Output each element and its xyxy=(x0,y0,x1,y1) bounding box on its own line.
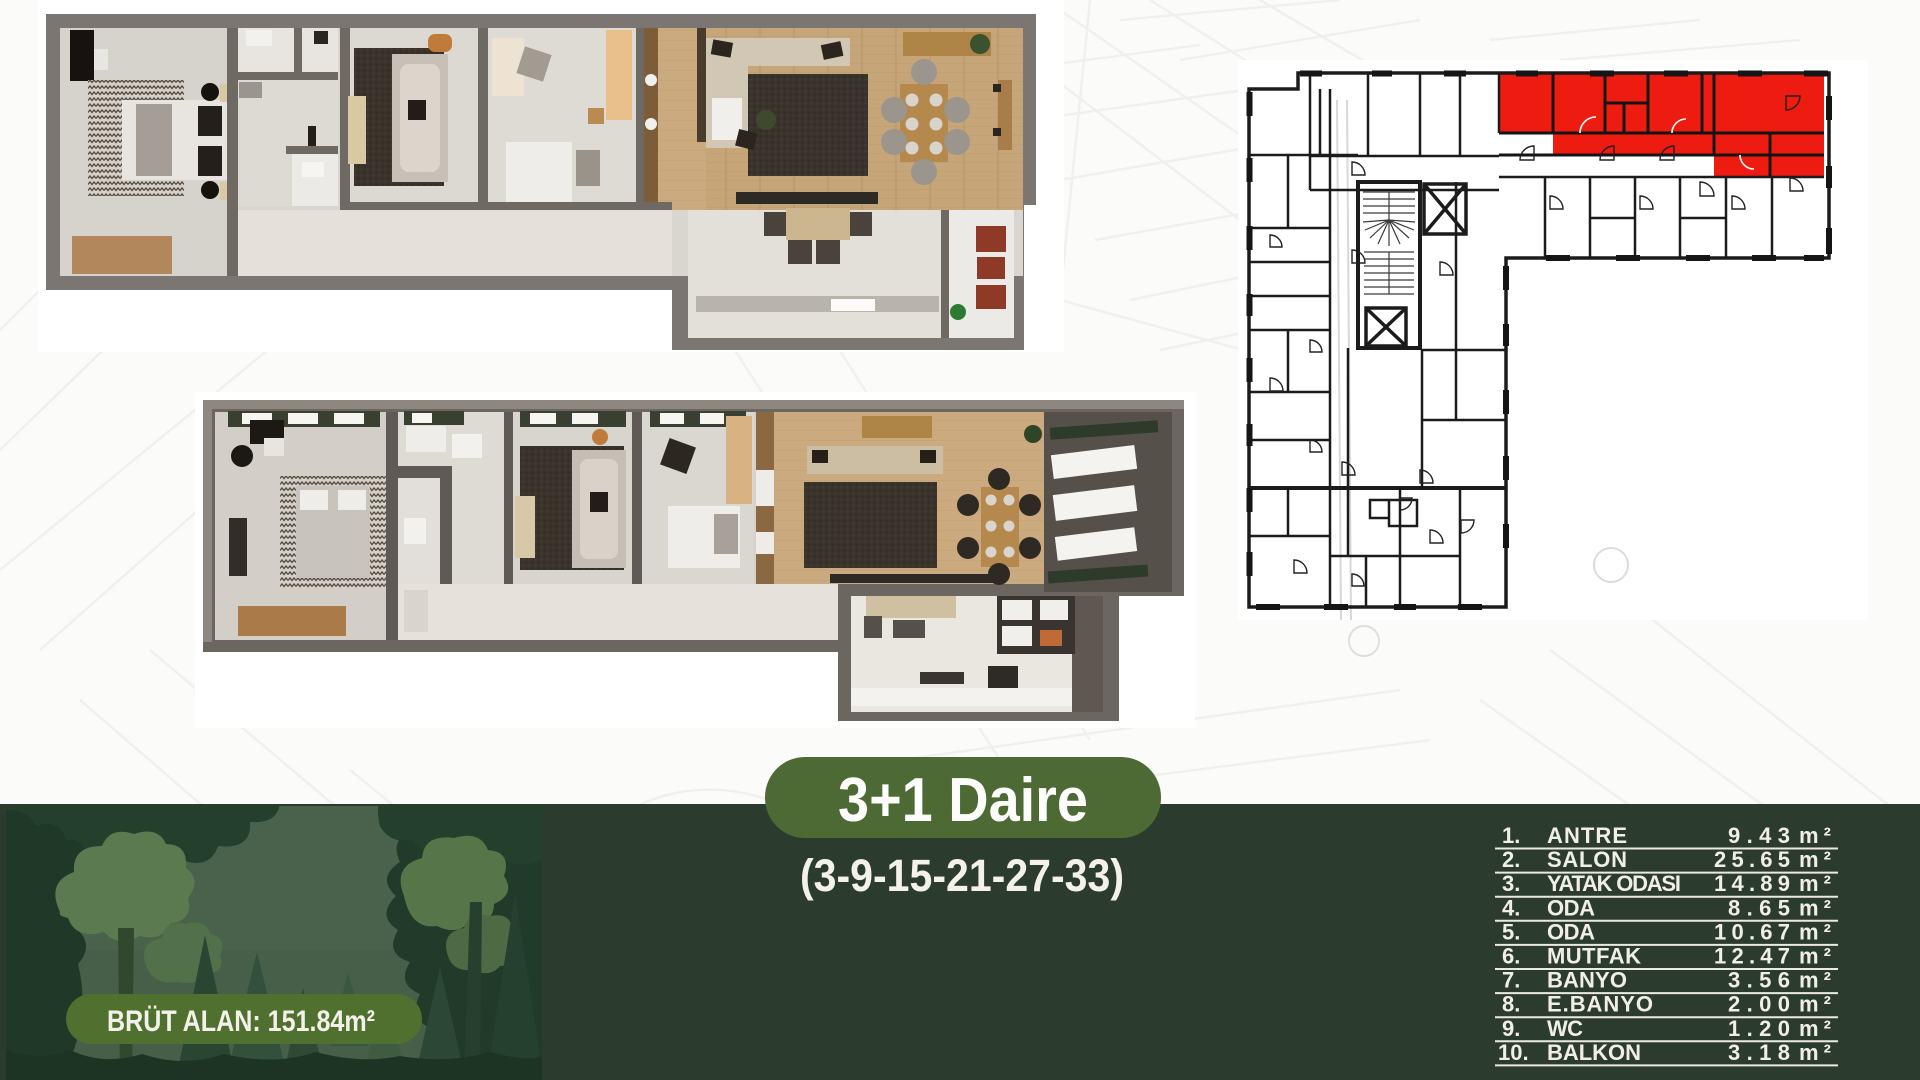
svg-text:12.47: 12.47 xyxy=(1714,944,1790,969)
svg-text:WC: WC xyxy=(1547,1016,1583,1041)
svg-text:BALKON: BALKON xyxy=(1547,1040,1641,1065)
svg-text:1.: 1. xyxy=(1502,823,1520,848)
svg-text:m²: m² xyxy=(1799,919,1831,944)
svg-text:m²: m² xyxy=(1799,1040,1831,1065)
svg-text:ODA: ODA xyxy=(1547,895,1595,920)
svg-text:MUTFAK: MUTFAK xyxy=(1547,944,1641,969)
svg-text:m²: m² xyxy=(1799,992,1831,1017)
svg-text:3.18: 3.18 xyxy=(1728,1040,1790,1065)
svg-text:m²: m² xyxy=(1799,823,1831,848)
svg-text:2.: 2. xyxy=(1502,847,1520,872)
svg-text:8.65: 8.65 xyxy=(1728,895,1790,920)
svg-text:7.: 7. xyxy=(1502,968,1520,993)
svg-text:m²: m² xyxy=(1799,1016,1831,1041)
svg-text:m²: m² xyxy=(1799,968,1831,993)
svg-text:25.65: 25.65 xyxy=(1714,847,1790,872)
svg-text:9.: 9. xyxy=(1502,1016,1520,1041)
svg-text:3+1 Daire: 3+1 Daire xyxy=(838,766,1088,835)
svg-text:ODA: ODA xyxy=(1547,919,1595,944)
svg-text:9.43: 9.43 xyxy=(1728,823,1790,848)
svg-text:8.: 8. xyxy=(1502,992,1520,1017)
svg-text:14.89: 14.89 xyxy=(1714,871,1790,896)
svg-text:4.: 4. xyxy=(1502,895,1520,920)
svg-text:1.20: 1.20 xyxy=(1728,1016,1790,1041)
svg-text:BRÜT ALAN: 151.84m²: BRÜT ALAN: 151.84m² xyxy=(107,1005,375,1038)
svg-text:ANTRE: ANTRE xyxy=(1547,823,1627,848)
svg-text:6.: 6. xyxy=(1502,944,1520,969)
svg-text:m²: m² xyxy=(1799,944,1831,969)
svg-text:10.67: 10.67 xyxy=(1714,919,1790,944)
svg-text:BANYO: BANYO xyxy=(1547,968,1627,993)
svg-text:5.: 5. xyxy=(1502,919,1520,944)
svg-text:3.56: 3.56 xyxy=(1728,968,1790,993)
svg-text:m²: m² xyxy=(1799,895,1831,920)
svg-text:2.00: 2.00 xyxy=(1728,992,1790,1017)
svg-text:SALON: SALON xyxy=(1547,847,1627,872)
svg-text:(3-9-15-21-27-33): (3-9-15-21-27-33) xyxy=(800,850,1124,901)
svg-text:10.: 10. xyxy=(1498,1040,1529,1065)
svg-text:m²: m² xyxy=(1799,847,1831,872)
svg-text:YATAK ODASI: YATAK ODASI xyxy=(1547,871,1681,896)
svg-text:m²: m² xyxy=(1799,871,1831,896)
svg-text:3.: 3. xyxy=(1502,871,1520,896)
svg-text:E.BANYO: E.BANYO xyxy=(1547,992,1653,1017)
